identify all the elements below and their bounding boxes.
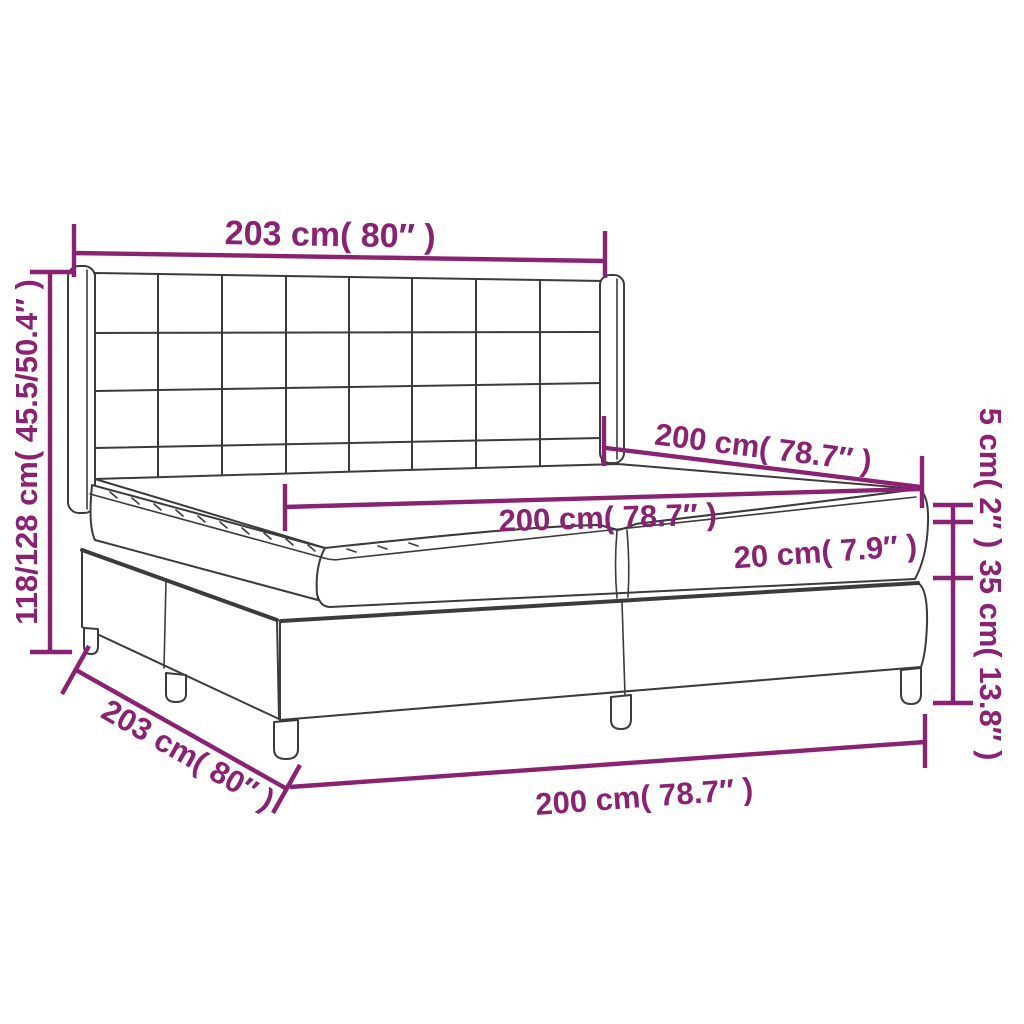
dim-overall-height-label: 118/128 cm( 45.5/50.4″ ) xyxy=(9,279,44,625)
bed-leg-front-middle xyxy=(611,695,631,729)
dim-topper-height-label: 5 cm( 2″ ) xyxy=(973,408,1008,549)
dim-base-height-label: 35 cm( 13.8″ ) xyxy=(973,560,1008,761)
bed-leg-front-left xyxy=(274,720,298,759)
dim-headboard-width-label: 203 cm( 80″ ) xyxy=(224,214,436,256)
bed-leg-front-right xyxy=(901,668,921,704)
diagram-canvas: 203 cm( 80″ ) 118/128 cm( 45.5/50.4″ ) 2… xyxy=(0,0,1024,1024)
dim-mattress-width-label: 200 cm( 78.7″ ) xyxy=(498,497,717,539)
dim-base-depth-label: 203 cm( 80″ ) xyxy=(96,692,281,817)
headboard-left-wing xyxy=(68,266,95,513)
dim-right-height-line xyxy=(933,505,973,703)
dim-base-width-line xyxy=(290,714,925,787)
dim-base-width-label: 200 cm( 78.7″ ) xyxy=(534,771,754,822)
bed-dimension-diagram: 203 cm( 80″ ) 118/128 cm( 45.5/50.4″ ) 2… xyxy=(0,0,1024,1024)
bed-leg-side-middle xyxy=(166,673,186,702)
